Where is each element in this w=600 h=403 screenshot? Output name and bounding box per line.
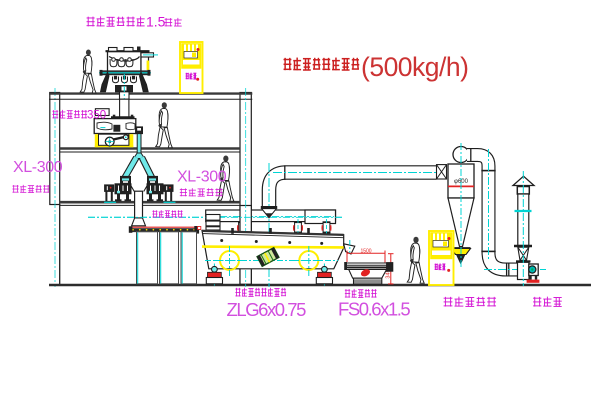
svg-text:1.5: 1.5 xyxy=(146,14,166,30)
svg-text:1500: 1500 xyxy=(360,248,371,254)
svg-text:(500kg/h): (500kg/h) xyxy=(361,52,468,82)
svg-text:ZLG6x0.75: ZLG6x0.75 xyxy=(227,299,307,320)
svg-text:350: 350 xyxy=(87,110,106,122)
svg-text:XL-300: XL-300 xyxy=(13,159,63,176)
svg-text:FS0.6x1.5: FS0.6x1.5 xyxy=(338,299,410,320)
svg-text:XL-300: XL-300 xyxy=(177,169,227,186)
